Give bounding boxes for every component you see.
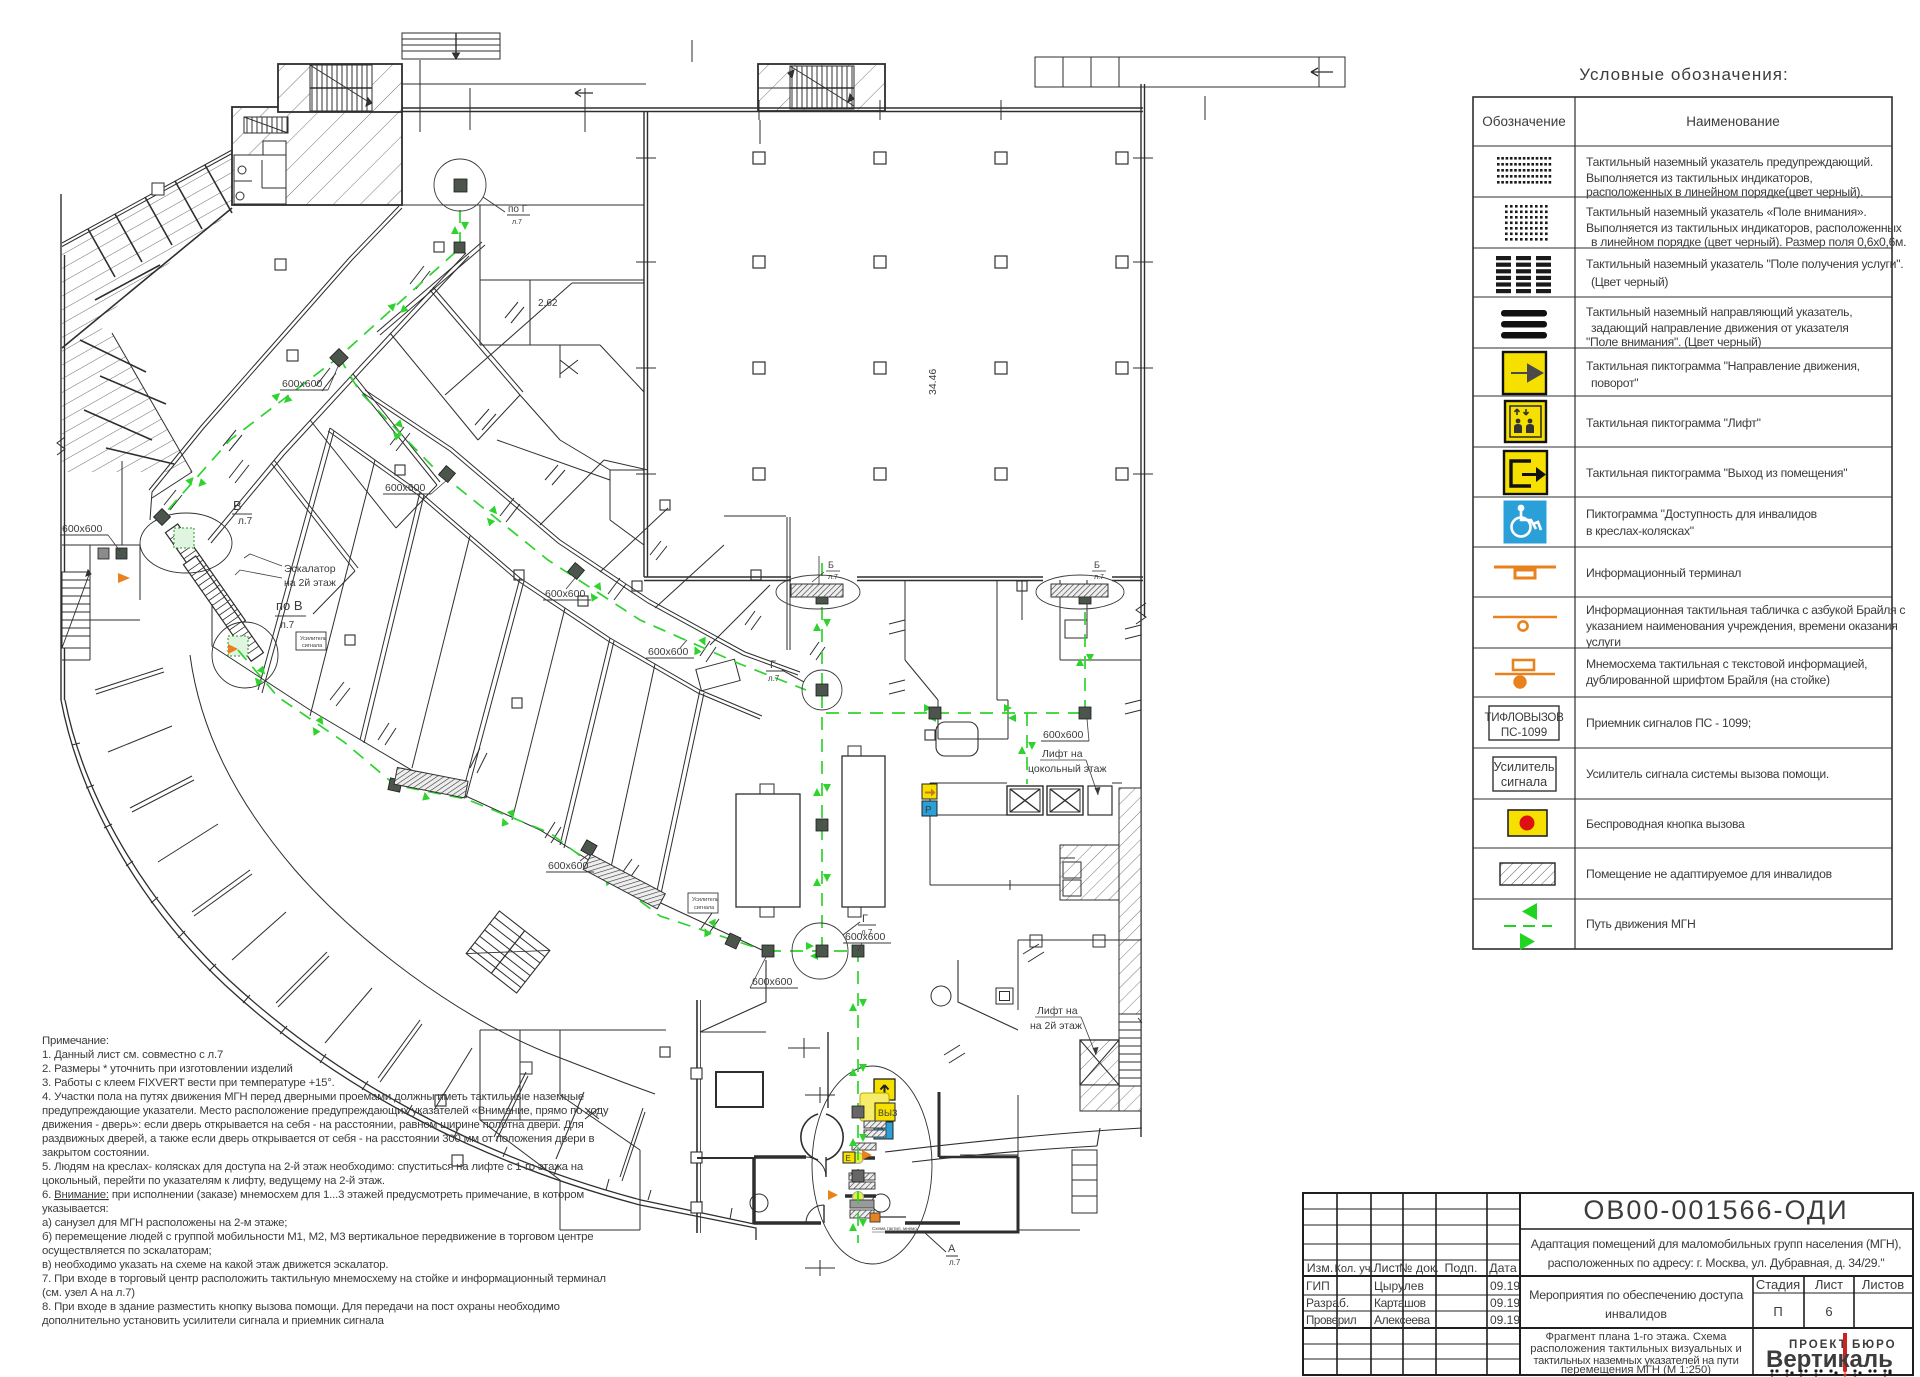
svg-text:Листов: Листов (1862, 1277, 1904, 1292)
svg-text:задающий направление движения: задающий направление движения от указате… (1591, 321, 1849, 335)
svg-text:Лифт на: Лифт на (1042, 748, 1083, 760)
svg-text:Проверил: Проверил (1306, 1314, 1356, 1327)
svg-text:Тактильная пиктограмма "Направ: Тактильная пиктограмма "Направление движ… (1586, 359, 1860, 373)
svg-text:Тактильный наземный указатель: Тактильный наземный указатель «Поле вним… (1586, 205, 1866, 219)
svg-text:2.62: 2.62 (538, 298, 558, 309)
svg-text:600x600: 600x600 (845, 931, 885, 943)
svg-text:Лист: Лист (1815, 1277, 1843, 1292)
svg-text:Адаптация помещений для маломо: Адаптация помещений для маломобильных гр… (1531, 1237, 1902, 1251)
svg-text:б) перемещение людей с группой: б) перемещение людей с группой мобильнос… (42, 1231, 593, 1243)
svg-text:Схема тактил. мнемо: Схема тактил. мнемо (872, 1226, 917, 1231)
svg-text:Мероприятия по обеспечению дос: Мероприятия по обеспечению доступа (1529, 1288, 1743, 1302)
svg-text:600x600: 600x600 (62, 523, 102, 535)
svg-text:1. Данный лист см. совместно с: 1. Данный лист см. совместно с л.7 (42, 1049, 223, 1061)
svg-text:Алексеева: Алексеева (1374, 1313, 1430, 1327)
svg-text:Лифт на: Лифт на (1037, 1005, 1078, 1017)
svg-text:Б: Б (828, 560, 834, 570)
svg-text:Кол. уч.: Кол. уч. (1334, 1263, 1373, 1275)
svg-text:34.46: 34.46 (927, 369, 939, 395)
svg-text:Тактильный наземный указатель: Тактильный наземный указатель "Поле полу… (1586, 257, 1903, 271)
svg-text:Усилитель: Усилитель (300, 636, 327, 642)
svg-text:П: П (1773, 1304, 1782, 1319)
svg-text:5. Людям на креслах- колясках: 5. Людям на креслах- колясках для доступ… (42, 1161, 584, 1173)
svg-text:600x600: 600x600 (752, 976, 792, 988)
svg-text:600x600: 600x600 (648, 646, 688, 658)
svg-text:Г: Г (862, 913, 868, 925)
svg-text:ГИП: ГИП (1306, 1279, 1330, 1293)
svg-text:движения - дверь»: если дверь: движения - дверь»: если дверь открываетс… (42, 1119, 584, 1131)
svg-text:Подп.: Подп. (1445, 1261, 1478, 1275)
svg-text:сигнала: сигнала (1501, 775, 1547, 789)
svg-text:2. Размеры * уточнить при изго: 2. Размеры * уточнить при изготовлении и… (42, 1063, 293, 1075)
svg-text:ВЫЗ: ВЫЗ (878, 1108, 897, 1118)
svg-text:раздвижных дверей, а также есл: раздвижных дверей, а также если дверь от… (42, 1133, 594, 1145)
svg-text:л.7: л.7 (768, 674, 780, 683)
svg-text:в линейном порядке (цвет черны: в линейном порядке (цвет черный). Размер… (1591, 235, 1906, 249)
svg-text:л.7: л.7 (1094, 574, 1104, 581)
svg-text:Беспроводная кнопка вызова: Беспроводная кнопка вызова (1586, 817, 1745, 831)
svg-text:Тактильная пиктограмма "Лифт": Тактильная пиктограмма "Лифт" (1586, 416, 1761, 430)
svg-text:"Поле внимания". (Цвет черный: "Поле внимания". (Цвет черный) (1586, 335, 1762, 349)
svg-text:осуществляется по эскалаторам;: осуществляется по эскалаторам; (42, 1245, 211, 1257)
svg-text:Разраб.: Разраб. (1306, 1296, 1349, 1310)
svg-text:Усилитель сигнала системы вызо: Усилитель сигнала системы вызова помощи. (1586, 767, 1829, 781)
svg-text:расположенных в линейном поряд: расположенных в линейном порядке(цвет че… (1586, 185, 1863, 199)
svg-text:Выполняется из тактильных инди: Выполняется из тактильных индикаторов, (1586, 171, 1812, 185)
svg-text:Г: Г (770, 659, 776, 671)
svg-text:Выполняется из тактильных инди: Выполняется из тактильных индикаторов, р… (1586, 221, 1902, 235)
svg-text:цокольный этаж: цокольный этаж (1028, 763, 1106, 775)
svg-text:указанием наименования учрежде: указанием наименования учреждения, време… (1586, 619, 1898, 633)
svg-text:3. Работы с клеем FIXVERT вест: 3. Работы с клеем FIXVERT вести при темп… (42, 1077, 335, 1089)
svg-text:Вертикаль: Вертикаль (1766, 1346, 1893, 1373)
svg-text:в) необходимо указать на схем: в) необходимо указать на схеме на какой … (42, 1259, 388, 1271)
svg-text:6: 6 (1825, 1304, 1832, 1319)
svg-text:закрытом состоянии.: закрытом состоянии. (42, 1147, 149, 1159)
svg-text:Пиктограмма "Доступность для и: Пиктограмма "Доступность для инвалидов (1586, 507, 1817, 521)
svg-text:А: А (948, 1243, 956, 1255)
svg-text:сигнала: сигнала (302, 643, 323, 649)
svg-text:600x600: 600x600 (545, 588, 585, 600)
svg-text:7. При входе в торговый центр: 7. При входе в торговый центр расположит… (42, 1273, 606, 1285)
svg-text:инвалидов: инвалидов (1605, 1307, 1667, 1321)
svg-text:600x600: 600x600 (1043, 729, 1083, 741)
svg-text:Дата: Дата (1489, 1261, 1517, 1275)
svg-text:Усилитель: Усилитель (692, 897, 719, 903)
svg-text:P: P (925, 805, 932, 816)
svg-text:предупреждающие указатели. Мес: предупреждающие указатели. Место располо… (42, 1105, 609, 1117)
svg-text:перемещения МГН (М 1:250): перемещения МГН (М 1:250) (1561, 1364, 1711, 1376)
svg-text:по Г: по Г (508, 204, 528, 215)
svg-text:расположенных по адресу: г. Мо: расположенных по адресу: г. Москва, ул. … (1548, 1256, 1885, 1270)
svg-text:Карташов: Карташов (1374, 1296, 1426, 1310)
svg-text:600x600: 600x600 (385, 482, 425, 494)
svg-text:л.7: л.7 (512, 219, 522, 226)
svg-text:(см. узел А на л.7): (см. узел А на л.7) (42, 1287, 135, 1299)
svg-text:09.19: 09.19 (1490, 1296, 1520, 1310)
svg-text:Фрагмент плана 1-го этажа. Схе: Фрагмент плана 1-го этажа. Схема (1545, 1331, 1727, 1343)
svg-text:№ док.: № док. (1399, 1261, 1439, 1275)
svg-text:расположения тактильных визуал: расположения тактильных визуальных и (1530, 1343, 1741, 1355)
svg-text:Информационный терминал: Информационный терминал (1586, 566, 1741, 580)
svg-text:л.7: л.7 (238, 516, 253, 527)
svg-text:Лист: Лист (1374, 1261, 1401, 1275)
svg-text:сигнала: сигнала (694, 905, 715, 911)
svg-text:Наименование: Наименование (1686, 114, 1780, 129)
svg-text:Помещение не адаптируемое для: Помещение не адаптируемое для инвалидов (1586, 867, 1832, 881)
svg-text:Мнемосхема тактильная с тексто: Мнемосхема тактильная с текстовой информ… (1586, 657, 1867, 671)
svg-text:E: E (846, 1154, 851, 1163)
svg-text:Приемник сигналов ПС - 1099;: Приемник сигналов ПС - 1099; (1586, 716, 1751, 730)
svg-text:ПС-1099: ПС-1099 (1501, 726, 1547, 739)
svg-text:дополнительно установить усили: дополнительно установить усилители сигна… (42, 1315, 385, 1327)
svg-text:4. Участки пола на путях движе: 4. Участки пола на путях движения МГН пе… (42, 1091, 584, 1103)
svg-text:а) санузел для МГН расположен: а) санузел для МГН расположены на 2-м эт… (42, 1217, 287, 1229)
svg-text:600x600: 600x600 (282, 378, 322, 390)
svg-text:В: В (233, 498, 242, 513)
svg-text:ТИФЛОВЫЗОВ: ТИФЛОВЫЗОВ (1484, 711, 1564, 724)
svg-text:Тактильный наземный указатель: Тактильный наземный указатель предупрежд… (1586, 155, 1873, 169)
svg-text:Примечание:: Примечание: (42, 1035, 109, 1047)
svg-text:6. Внимание: при исполнении (: 6. Внимание: при исполнении (заказе) мне… (42, 1189, 584, 1201)
svg-text:Условные обозначения:: Условные обозначения: (1579, 65, 1788, 84)
svg-text:09.19: 09.19 (1490, 1279, 1520, 1293)
svg-text:л.7: л.7 (949, 1258, 961, 1267)
svg-text:Информационная тактильная табл: Информационная тактильная табличка с азб… (1586, 603, 1905, 617)
svg-text:Стадия: Стадия (1756, 1277, 1800, 1292)
svg-text:в креслах-колясках": в креслах-колясках" (1586, 524, 1694, 538)
svg-text:(Цвет черный): (Цвет черный) (1591, 275, 1668, 289)
svg-text:дублированной шрифтом Брайля (: дублированной шрифтом Брайля (на стойке) (1586, 673, 1830, 687)
svg-text:услуги: услуги (1586, 635, 1621, 649)
svg-text:600x600: 600x600 (548, 860, 588, 872)
svg-text:поворот": поворот" (1591, 376, 1638, 390)
svg-text:л.7: л.7 (828, 574, 838, 581)
svg-text:Тактильный наземный направляющ: Тактильный наземный направляющий указате… (1586, 305, 1852, 319)
svg-text:л.7: л.7 (280, 620, 295, 631)
svg-text:Цырулев: Цырулев (1374, 1279, 1424, 1293)
svg-text:Б: Б (1094, 560, 1100, 570)
svg-text:цокольный, перейти по указател: цокольный, перейти по указателям к лифту… (42, 1175, 385, 1187)
svg-text:09.19: 09.19 (1490, 1313, 1520, 1327)
svg-text:Изм.: Изм. (1307, 1261, 1334, 1275)
svg-text:указывается:: указывается: (42, 1203, 109, 1215)
svg-text:Усилитель: Усилитель (1494, 760, 1555, 774)
svg-text:Обозначение: Обозначение (1482, 114, 1566, 129)
svg-text:Тактильная пиктограмма "Выход: Тактильная пиктограмма "Выход из помещен… (1586, 466, 1847, 480)
svg-text:8. При входе в здание размести: 8. При входе в здание разместить кнопку … (42, 1301, 560, 1313)
svg-text:на 2й этаж: на 2й этаж (1030, 1020, 1082, 1032)
svg-text:ОВ00-001566-ОДИ: ОВ00-001566-ОДИ (1583, 1195, 1848, 1225)
svg-text:Путь движения МГН: Путь движения МГН (1586, 917, 1695, 931)
